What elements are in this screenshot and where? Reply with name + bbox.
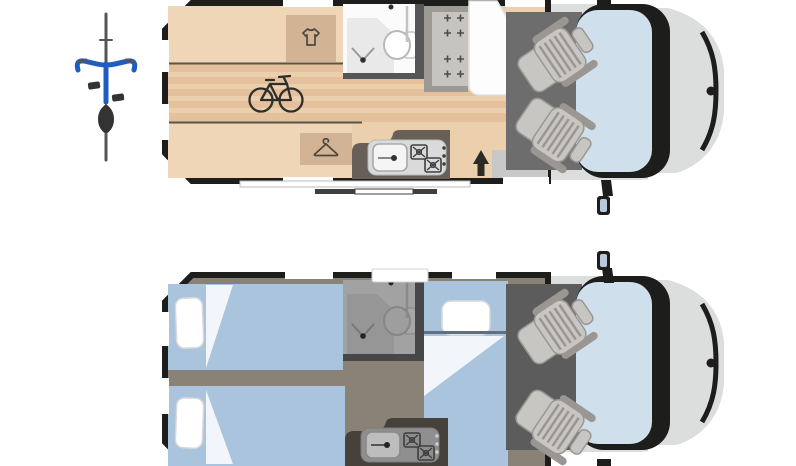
pillow (175, 298, 204, 349)
bicycle-icon (77, 14, 135, 160)
pillow (442, 301, 490, 335)
bed-rear-left (168, 284, 343, 370)
duvet-edge (424, 331, 508, 334)
mirror-stub-bottom (597, 459, 611, 466)
brand-emblem (707, 87, 716, 96)
day-bathroom (343, 4, 424, 79)
wardrobe-hanger (300, 133, 352, 165)
hob-knobs (442, 146, 445, 165)
front-wheel-arch-top (648, 0, 694, 8)
tap-dot (389, 5, 394, 10)
roof-window (372, 269, 428, 282)
bathroom-wall-right (415, 4, 424, 76)
pillow (175, 398, 204, 449)
sliding-door-open (240, 181, 470, 194)
night-bathroom (343, 280, 424, 361)
bathroom-wall-bottom (343, 73, 424, 79)
day-floorplan (162, 0, 724, 215)
dinette-bench (424, 6, 468, 92)
mirror-stub-top (597, 0, 611, 7)
floorplan-graphic (0, 0, 796, 466)
floorplan-canvas (0, 0, 796, 466)
side-mirror-bottom (597, 180, 613, 215)
saddle (98, 104, 114, 134)
night-floorplan (162, 251, 724, 466)
toilet-icon (384, 31, 416, 59)
bed-rear-right (168, 386, 345, 466)
wardrobe-shirt (286, 15, 336, 62)
